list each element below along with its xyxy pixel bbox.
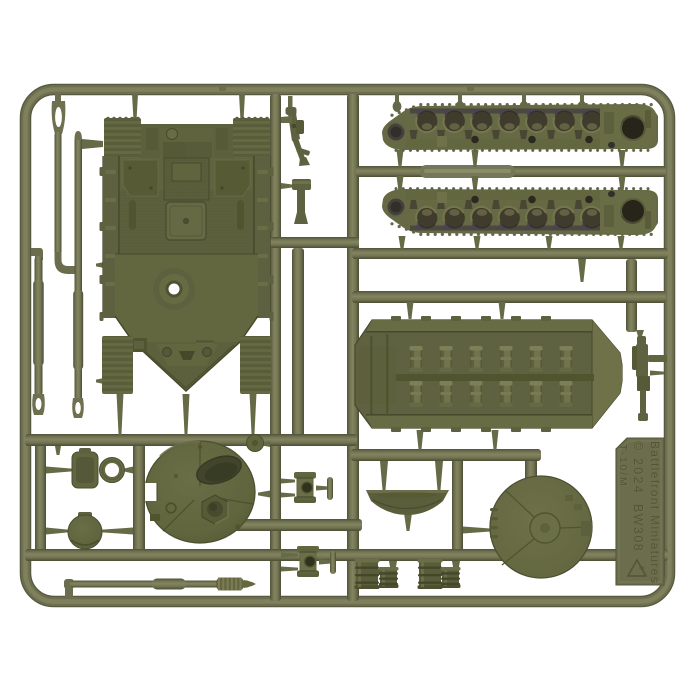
svg-text:© 2024: © 2024: [631, 441, 645, 493]
svg-text:BW308: BW308: [631, 504, 645, 551]
svg-text:6: 6: [638, 566, 645, 570]
svg-text:Battlefront Miniatures: Battlefront Miniatures: [648, 441, 662, 583]
